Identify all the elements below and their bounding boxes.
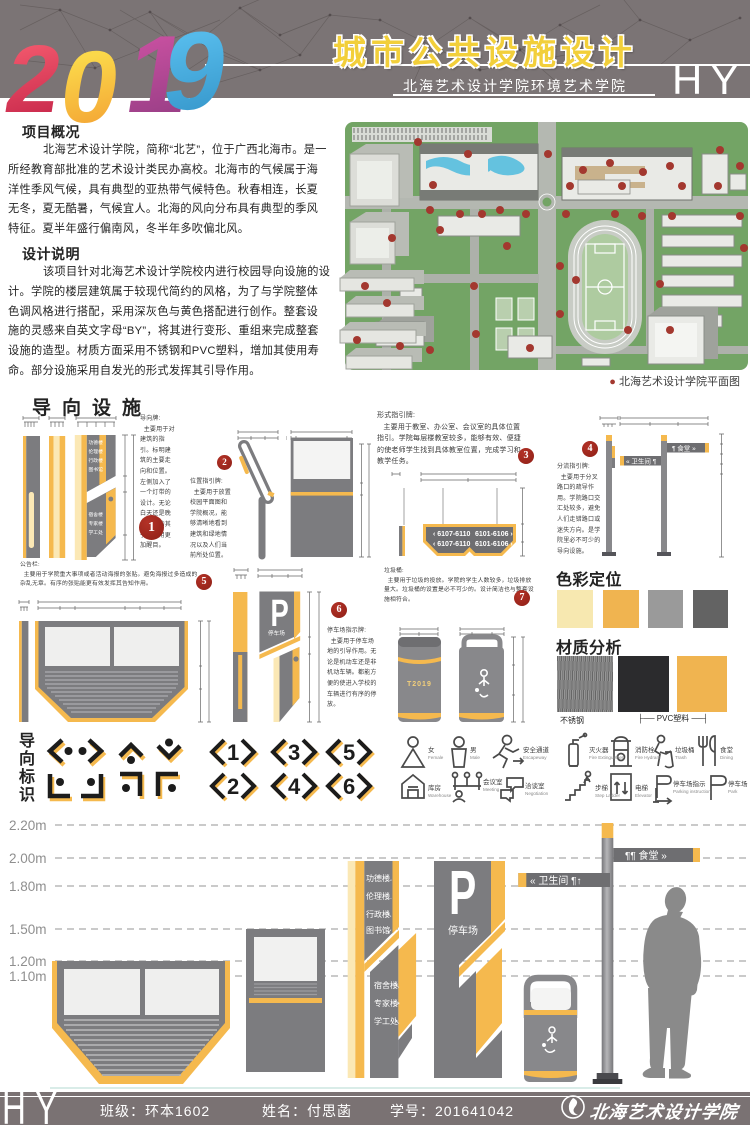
svg-text:伦理楼: 伦理楼 (89, 448, 104, 455)
svg-text:↗: ↗ (395, 1002, 400, 1008)
svg-text:Parking instruction: Parking instruction (673, 789, 711, 794)
svg-text:安全通道: 安全通道 (523, 745, 550, 754)
svg-text:会议室: 会议室 (483, 777, 503, 786)
svg-text:Dining: Dining (720, 755, 733, 760)
svg-text:Warehouse: Warehouse (428, 793, 452, 798)
svg-text:Meeting: Meeting (483, 787, 500, 792)
svg-text:1.10m: 1.10m (9, 969, 47, 984)
svg-text:Fire Hydrant: Fire Hydrant (635, 755, 661, 760)
svg-text:行政楼: 行政楼 (89, 457, 104, 464)
svg-text:1.20m: 1.20m (9, 954, 47, 969)
svg-text:停车场: 停车场 (728, 779, 748, 788)
svg-text:食堂: 食堂 (720, 745, 734, 754)
svg-text:‹ 6107-6110: ‹ 6107-6110 (433, 531, 470, 538)
svg-text:消防栓: 消防栓 (635, 745, 655, 754)
svg-text:Negotiation: Negotiation (525, 791, 549, 796)
svg-text:宿舍楼: 宿舍楼 (89, 511, 104, 518)
svg-text:2: 2 (227, 774, 239, 799)
svg-text:2.20m: 2.20m (9, 818, 47, 833)
svg-text:« 卫生间 ¶: « 卫生间 ¶ (626, 457, 657, 466)
svg-text:↖: ↖ (395, 984, 400, 990)
svg-text:电梯: 电梯 (635, 783, 649, 792)
svg-text:1: 1 (227, 740, 239, 765)
svg-text:5: 5 (343, 740, 355, 765)
svg-text:男: 男 (470, 746, 477, 754)
svg-text:停车场: 停车场 (448, 924, 478, 937)
svg-text:图书馆: 图书馆 (89, 466, 104, 473)
svg-text:6101-6106 ›: 6101-6106 › (475, 541, 513, 548)
svg-text:Male: Male (470, 755, 480, 760)
svg-text:→: → (387, 877, 393, 883)
svg-text:Park: Park (728, 789, 738, 794)
svg-text:Fire Extinguisher: Fire Extinguisher (589, 755, 624, 760)
svg-text:专家楼: 专家楼 (89, 520, 104, 527)
svg-text:停车场指示: 停车场指示 (673, 779, 706, 788)
svg-text:步梯: 步梯 (595, 783, 609, 792)
svg-text:↙: ↙ (387, 929, 392, 935)
svg-text:↖: ↖ (395, 1020, 400, 1026)
svg-text:¶¶ 食堂 »: ¶¶ 食堂 » (625, 849, 667, 862)
svg-text:1.80m: 1.80m (9, 879, 47, 894)
svg-text:Escapeway: Escapeway (523, 755, 547, 760)
svg-text:学工处: 学工处 (89, 529, 104, 536)
svg-text:垃圾桶: 垃圾桶 (675, 745, 695, 754)
svg-text:P: P (449, 859, 476, 929)
svg-text:« 卫生间 ¶↑: « 卫生间 ¶↑ (530, 874, 582, 887)
svg-text:Trash: Trash (675, 755, 687, 760)
svg-text:库房: 库房 (428, 783, 441, 792)
svg-text:Female: Female (428, 755, 444, 760)
svg-text:6: 6 (343, 774, 355, 799)
svg-text:Step Ladder: Step Ladder (595, 793, 621, 798)
svg-text:洽谈室: 洽谈室 (525, 781, 545, 790)
svg-text:Elevator: Elevator (635, 793, 652, 798)
svg-text:功德楼: 功德楼 (89, 439, 104, 446)
svg-text:2.00m: 2.00m (9, 851, 47, 866)
svg-text:¶ 食堂 »: ¶ 食堂 » (672, 444, 696, 453)
svg-text:灭火器: 灭火器 (589, 746, 609, 754)
svg-text:4: 4 (288, 774, 301, 799)
svg-text:T2019: T2019 (407, 681, 432, 688)
svg-text:↖: ↖ (387, 913, 392, 919)
svg-text:女: 女 (428, 745, 435, 754)
svg-text:P: P (271, 593, 289, 635)
svg-text:6101-6106 ›: 6101-6106 › (475, 531, 513, 538)
svg-text:1.50m: 1.50m (9, 922, 47, 937)
svg-text:‹ 6107-6110: ‹ 6107-6110 (433, 541, 470, 548)
svg-text:停车场: 停车场 (268, 629, 285, 637)
svg-text:3: 3 (288, 740, 300, 765)
svg-text:←: ← (387, 895, 393, 901)
